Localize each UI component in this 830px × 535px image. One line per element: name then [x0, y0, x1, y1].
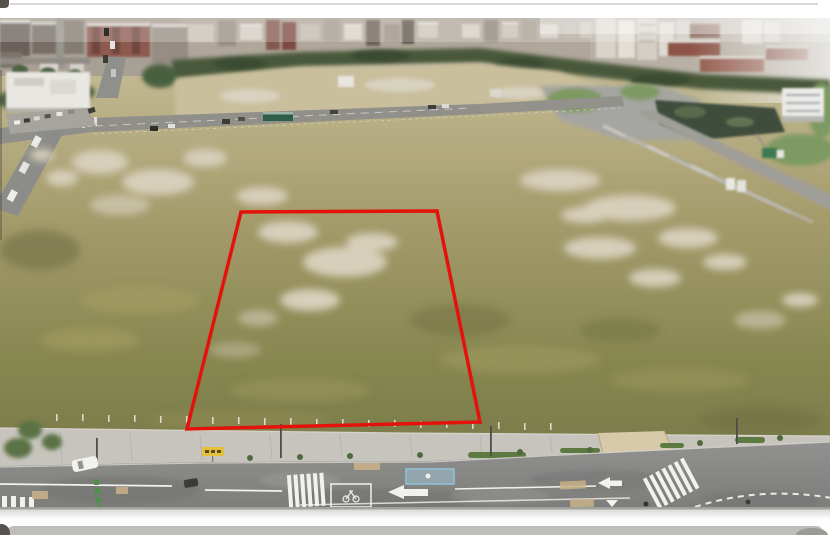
small-shed — [490, 89, 501, 97]
frame-bevel-band — [0, 510, 830, 519]
edge-sliver — [0, 70, 2, 240]
aerial-photo — [0, 0, 830, 535]
frame-white-band — [0, 518, 830, 527]
screenshot-canvas — [0, 0, 830, 535]
top-margin — [0, 0, 830, 18]
scooter-2 — [746, 500, 751, 505]
white-office-building — [782, 88, 824, 122]
photo-content — [0, 18, 830, 512]
photo-bottom-edge — [0, 507, 830, 510]
scooter-waiting-area — [406, 469, 454, 484]
white-shed — [338, 76, 354, 87]
scooter-1 — [644, 502, 649, 507]
top-left-frame-corner — [0, 0, 9, 8]
bottom-frame-band — [6, 526, 824, 535]
retail-building — [6, 72, 90, 112]
